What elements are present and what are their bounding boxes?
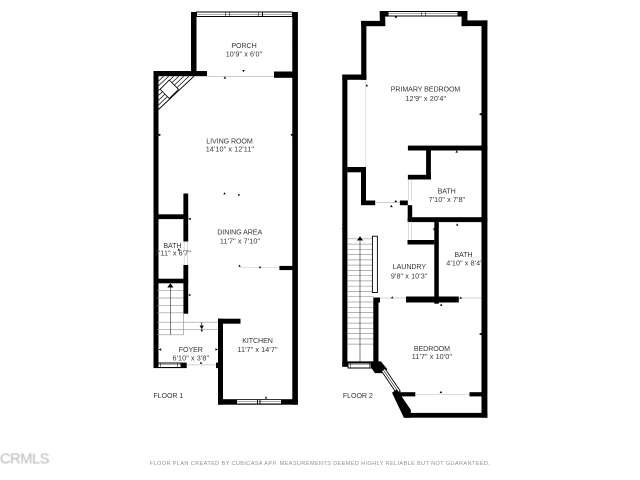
svg-text:10'9" x 6'0": 10'9" x 6'0" <box>226 49 263 58</box>
svg-text:6'10" x 3'8": 6'10" x 3'8" <box>172 353 209 362</box>
svg-text:FLOOR 2: FLOOR 2 <box>343 392 373 400</box>
svg-text:12'9" x 20'4": 12'9" x 20'4" <box>405 94 446 103</box>
svg-text:LAUNDRY: LAUNDRY <box>393 263 427 271</box>
svg-text:BATH: BATH <box>454 251 472 259</box>
svg-text:FLOOR PLAN CREATED BY CUBICASA: FLOOR PLAN CREATED BY CUBICASA APP. MEAS… <box>150 461 490 467</box>
svg-text:KITCHEN: KITCHEN <box>242 337 273 345</box>
svg-text:11'7" x 10'0": 11'7" x 10'0" <box>412 352 453 361</box>
svg-text:4'10" x 8'4": 4'10" x 8'4" <box>446 259 483 268</box>
svg-text:7'11" x 6'7": 7'11" x 6'7" <box>155 248 191 257</box>
svg-text:FLOOR 1: FLOOR 1 <box>153 392 183 400</box>
svg-text:11'7" x 14'7": 11'7" x 14'7" <box>237 345 278 354</box>
svg-text:11'7" x 7'10": 11'7" x 7'10" <box>220 236 261 245</box>
svg-text:14'10" x 12'11": 14'10" x 12'11" <box>206 144 255 153</box>
svg-text:CRMLS: CRMLS <box>0 451 50 467</box>
svg-text:PRIMARY BEDROOM: PRIMARY BEDROOM <box>391 85 461 93</box>
svg-text:7'10" x 7'8": 7'10" x 7'8" <box>429 195 466 204</box>
svg-text:9'8" x 10'3": 9'8" x 10'3" <box>391 272 428 281</box>
